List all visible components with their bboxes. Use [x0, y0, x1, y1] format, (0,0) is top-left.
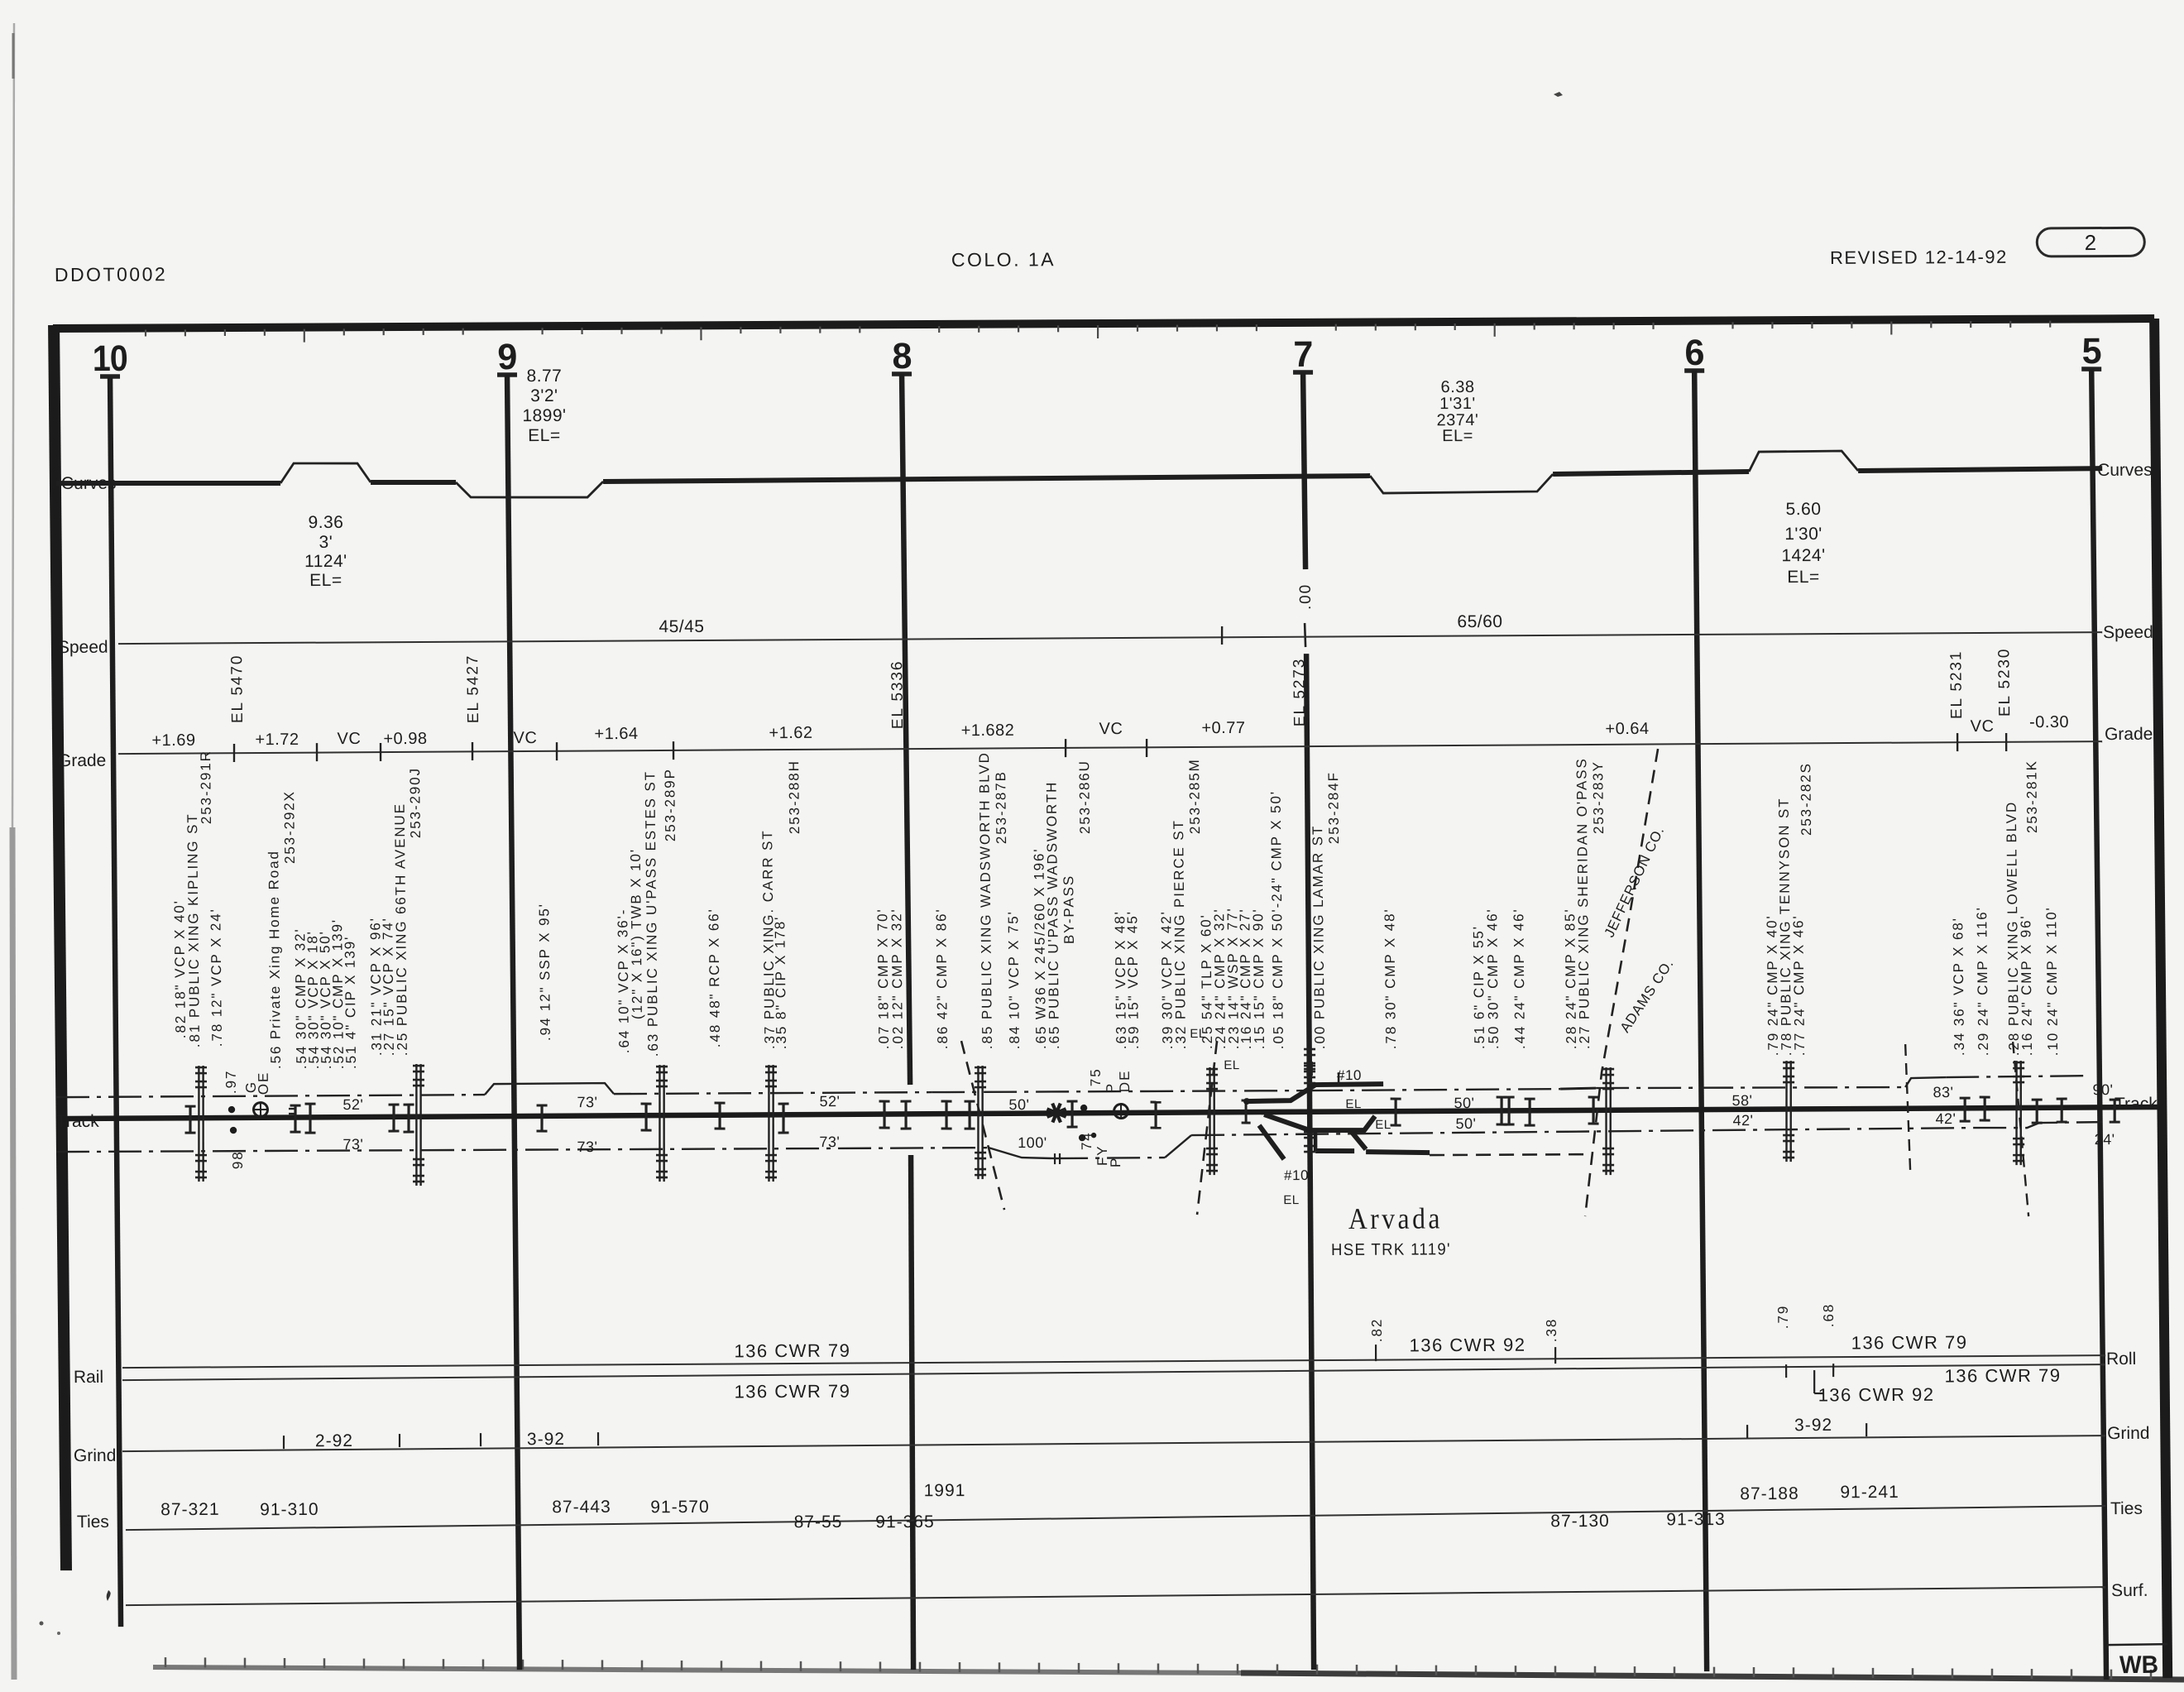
svg-text:52': 52': [342, 1096, 363, 1113]
svg-text:1899': 1899': [522, 406, 566, 425]
svg-text:.29 24" CMP X 116': .29 24" CMP X 116': [1974, 906, 1991, 1056]
svg-text:253-288H: 253-288H: [786, 760, 802, 834]
svg-text:50': 50': [1008, 1096, 1029, 1113]
svg-text:24': 24': [2095, 1131, 2115, 1148]
svg-text:136 CWR 79: 136 CWR 79: [734, 1340, 850, 1362]
svg-text:.68: .68: [1821, 1303, 1837, 1327]
svg-text:73': 73': [577, 1094, 597, 1110]
svg-text:.00: .00: [1297, 583, 1315, 610]
svg-text:Track: Track: [56, 1112, 99, 1131]
svg-text:Rail: Rail: [74, 1368, 103, 1387]
svg-text:#10: #10: [1337, 1067, 1362, 1083]
svg-text:EL: EL: [1375, 1118, 1391, 1132]
svg-text:EL: EL: [1224, 1058, 1240, 1072]
svg-text:.77 24" CMP X 46': .77 24" CMP X 46': [1790, 914, 1808, 1056]
svg-text:.94 12" SSP X 95': .94 12" SSP X 95': [536, 903, 553, 1041]
svg-text:Speed: Speed: [58, 638, 108, 657]
svg-text:253-287B: 253-287B: [993, 770, 1009, 844]
svg-text:.15 15" CMP X 90': .15 15" CMP X 90': [1250, 908, 1267, 1049]
svg-text:.51 4" CIP X 139': .51 4" CIP X 139': [342, 936, 359, 1069]
svg-text:Ties: Ties: [77, 1512, 109, 1531]
svg-text:Grind: Grind: [74, 1446, 117, 1465]
svg-text:P: P: [1108, 1157, 1123, 1167]
svg-text:.27 PUBLIC XING SHERIDAN O'PAS: .27 PUBLIC XING SHERIDAN O'PASS: [1573, 757, 1592, 1049]
svg-text:91-313: 91-313: [1666, 1510, 1726, 1529]
svg-text:DDOT0002: DDOT0002: [55, 263, 168, 285]
svg-text:253-286U: 253-286U: [1076, 760, 1093, 834]
svg-text:EL 5336: EL 5336: [888, 660, 907, 730]
svg-text:.65 PUBLIC U'PASS WADSWORTH: .65 PUBLIC U'PASS WADSWORTH: [1043, 781, 1062, 1049]
svg-text:Speed: Speed: [2103, 623, 2153, 642]
svg-text:50': 50': [1455, 1115, 1476, 1132]
svg-text:EL 5427: EL 5427: [464, 654, 482, 724]
svg-text:.97: .97: [223, 1070, 239, 1094]
svg-text:+0.64: +0.64: [1605, 720, 1649, 738]
svg-text:87-130: 87-130: [1550, 1512, 1610, 1531]
svg-text:8: 8: [892, 336, 912, 376]
svg-text:Ties: Ties: [2110, 1499, 2143, 1518]
svg-text:Curves: Curves: [2097, 461, 2153, 480]
svg-text:+1.69: +1.69: [151, 731, 195, 750]
svg-text:.35 8" CIP X 178': .35 8" CIP X 178': [772, 916, 789, 1049]
svg-text:REVISED 12-14-92: REVISED 12-14-92: [1830, 247, 2008, 268]
svg-text:1991: 1991: [924, 1481, 966, 1500]
svg-text:10: 10: [93, 338, 128, 379]
svg-text:136 CWR 92: 136 CWR 92: [1818, 1384, 1934, 1406]
svg-text:50': 50': [1454, 1095, 1474, 1111]
svg-text:+1.72: +1.72: [255, 731, 299, 749]
svg-text:136 CWR 79: 136 CWR 79: [734, 1381, 850, 1402]
svg-text:.56 Private Xing Home Road: .56 Private Xing Home Road: [266, 850, 284, 1069]
svg-text:.81 PUBLIC XING KIPLING ST: .81 PUBLIC XING KIPLING ST: [184, 812, 203, 1047]
svg-text:253-289P: 253-289P: [662, 768, 678, 841]
svg-text:EL 5273: EL 5273: [1291, 658, 1309, 727]
svg-text:.25 PUBLIC XING 66TH AVENUE: .25 PUBLIC XING 66TH AVENUE: [392, 803, 410, 1056]
svg-text:VC: VC: [1099, 720, 1123, 738]
svg-text:.02 12" CMP X 32': .02 12" CMP X 32': [888, 908, 906, 1049]
svg-text:VC: VC: [1971, 717, 1995, 736]
svg-text:.48 48" RCP X 66': .48 48" RCP X 66': [706, 908, 723, 1047]
svg-text:5.60: 5.60: [1785, 500, 1821, 519]
svg-text:52': 52': [819, 1093, 840, 1110]
svg-text:91-365: 91-365: [875, 1512, 935, 1531]
svg-text:.78 30" CMP X 48': .78 30" CMP X 48': [1382, 908, 1399, 1049]
svg-text:91-310: 91-310: [260, 1500, 319, 1519]
svg-text:5: 5: [2081, 331, 2101, 371]
svg-text:.00 PUBLIC XING LAMAR ST: .00 PUBLIC XING LAMAR ST: [1310, 825, 1328, 1050]
svg-text:7: 7: [1293, 334, 1313, 375]
svg-text:253-292X: 253-292X: [281, 790, 298, 864]
svg-text:.78 12" VCP X 24': .78 12" VCP X 24': [208, 908, 225, 1047]
svg-text:Grade: Grade: [58, 751, 107, 770]
svg-text:WB: WB: [2119, 1651, 2158, 1679]
svg-text:.34 36" VCP X 68': .34 36" VCP X 68': [1950, 917, 1967, 1056]
svg-text:.16 24" CMP X 96': .16 24" CMP X 96': [2018, 914, 2035, 1056]
svg-text:83': 83': [1933, 1084, 1953, 1100]
svg-text:EL: EL: [1345, 1097, 1362, 1111]
svg-text:DE: DE: [1117, 1070, 1133, 1093]
svg-text:91-241: 91-241: [1840, 1483, 1899, 1502]
svg-text:136 CWR 79: 136 CWR 79: [1851, 1332, 1967, 1354]
svg-text:.50 30" CMP X 46': .50 30" CMP X 46': [1484, 908, 1501, 1049]
svg-text:EL 5470: EL 5470: [228, 654, 247, 724]
svg-text:VC: VC: [513, 729, 537, 747]
svg-text:58': 58': [1731, 1092, 1752, 1109]
svg-text:+1.64: +1.64: [594, 725, 638, 743]
svg-text:75: 75: [1088, 1067, 1104, 1086]
svg-text:3': 3': [318, 533, 333, 552]
svg-text:136 CWR 92: 136 CWR 92: [1409, 1335, 1525, 1356]
svg-text:253-283Y: 253-283Y: [1590, 760, 1607, 834]
svg-text:+0.98: +0.98: [383, 730, 427, 748]
svg-text:Track: Track: [2115, 1095, 2158, 1114]
svg-text:.59 15" VCP X 45': .59 15" VCP X 45': [1124, 910, 1142, 1049]
svg-text:87-188: 87-188: [1740, 1484, 1799, 1503]
svg-text:87-443: 87-443: [552, 1498, 611, 1517]
svg-text:42': 42': [1732, 1112, 1753, 1129]
svg-text:EL 5230: EL 5230: [1995, 648, 2014, 717]
svg-text:.38: .38: [1544, 1318, 1559, 1342]
svg-text:EL=: EL=: [528, 426, 561, 445]
svg-text:253-281K: 253-281K: [2024, 760, 2040, 833]
svg-text:EL: EL: [1283, 1193, 1300, 1207]
svg-text:73': 73': [342, 1136, 363, 1153]
svg-text:42': 42': [1935, 1110, 1956, 1127]
svg-text:45/45: 45/45: [659, 617, 704, 636]
svg-text:2-92: 2-92: [315, 1431, 353, 1450]
svg-text:6: 6: [1684, 333, 1704, 373]
svg-text:.10 24" CMP X 110': .10 24" CMP X 110': [2043, 906, 2061, 1056]
svg-text:Roll: Roll: [2106, 1349, 2136, 1368]
svg-text:COLO. 1A: COLO. 1A: [951, 248, 1056, 271]
svg-text:90': 90': [2092, 1081, 2113, 1098]
svg-text:87-55: 87-55: [794, 1512, 843, 1531]
svg-text:Grade: Grade: [2105, 725, 2153, 744]
svg-text:.63 PUBLIC XING U'PASS ESTES S: .63 PUBLIC XING U'PASS ESTES ST: [642, 770, 661, 1057]
svg-text:EL=: EL=: [309, 571, 342, 590]
svg-text:253-290J: 253-290J: [407, 767, 424, 838]
svg-text:1'30': 1'30': [1784, 525, 1822, 544]
svg-text:100': 100': [1018, 1134, 1047, 1151]
svg-text:+0.77: +0.77: [1201, 719, 1245, 737]
svg-text:136 CWR 79: 136 CWR 79: [1944, 1365, 2061, 1387]
svg-text:1'31': 1'31': [1439, 395, 1476, 413]
svg-text:1424': 1424': [1781, 546, 1825, 565]
svg-text:VC: VC: [337, 730, 361, 748]
svg-text:253-285M: 253-285M: [1186, 758, 1203, 834]
svg-text:3-92: 3-92: [1794, 1416, 1832, 1435]
svg-text:+1.682: +1.682: [961, 721, 1015, 740]
svg-text:+1.62: +1.62: [769, 724, 812, 742]
svg-text:8.77: 8.77: [526, 367, 562, 386]
svg-text:253-291R: 253-291R: [198, 750, 214, 824]
svg-text:#10: #10: [1284, 1167, 1309, 1183]
svg-text:73': 73': [577, 1138, 597, 1155]
svg-text:2: 2: [2084, 230, 2096, 255]
svg-text:.86 42" CMP X 86': .86 42" CMP X 86': [933, 908, 951, 1049]
svg-text:253-284F: 253-284F: [1325, 771, 1342, 844]
svg-text:OE: OE: [256, 1071, 271, 1095]
svg-text:87-321: 87-321: [160, 1500, 220, 1519]
svg-text:EL=: EL=: [1787, 568, 1820, 587]
svg-text:Arvada: Arvada: [1348, 1201, 1443, 1235]
svg-text:98: 98: [230, 1150, 246, 1169]
svg-text:EL=: EL=: [1442, 427, 1473, 445]
svg-text:Surf.: Surf.: [2111, 1581, 2148, 1600]
svg-text:1124': 1124': [304, 552, 347, 571]
svg-text:.44 24" CMP X 46': .44 24" CMP X 46': [1511, 908, 1528, 1049]
svg-text:6.38: 6.38: [1440, 378, 1474, 396]
svg-text:91-570: 91-570: [650, 1498, 710, 1517]
svg-text:9: 9: [497, 337, 517, 377]
svg-text:.82: .82: [1369, 1318, 1385, 1342]
svg-text:.05 18" CMP X 50'-24" CMP X 50: .05 18" CMP X 50'-24" CMP X 50': [1268, 790, 1286, 1049]
svg-text:BY-PASS: BY-PASS: [1061, 875, 1077, 944]
svg-text:Grind: Grind: [2107, 1424, 2150, 1443]
svg-text:.79: .79: [1775, 1305, 1791, 1329]
svg-text:9.36: 9.36: [308, 513, 343, 532]
svg-text:.32 PUBLIC XING PIERCE ST: .32 PUBLIC XING PIERCE ST: [1171, 819, 1189, 1049]
svg-text:-0.30: -0.30: [2029, 713, 2069, 731]
svg-text:253-282S: 253-282S: [1798, 762, 1814, 836]
svg-text:73': 73': [819, 1134, 840, 1150]
svg-text:3-92: 3-92: [527, 1430, 565, 1449]
svg-text:3'2': 3'2': [530, 386, 558, 405]
svg-text:65/60: 65/60: [1457, 612, 1502, 631]
svg-text:.84 10" VCP X 75': .84 10" VCP X 75': [1005, 910, 1023, 1049]
svg-text:EL 5231: EL 5231: [1947, 650, 1966, 720]
svg-text:HSE TRK 1119': HSE TRK 1119': [1331, 1240, 1451, 1259]
